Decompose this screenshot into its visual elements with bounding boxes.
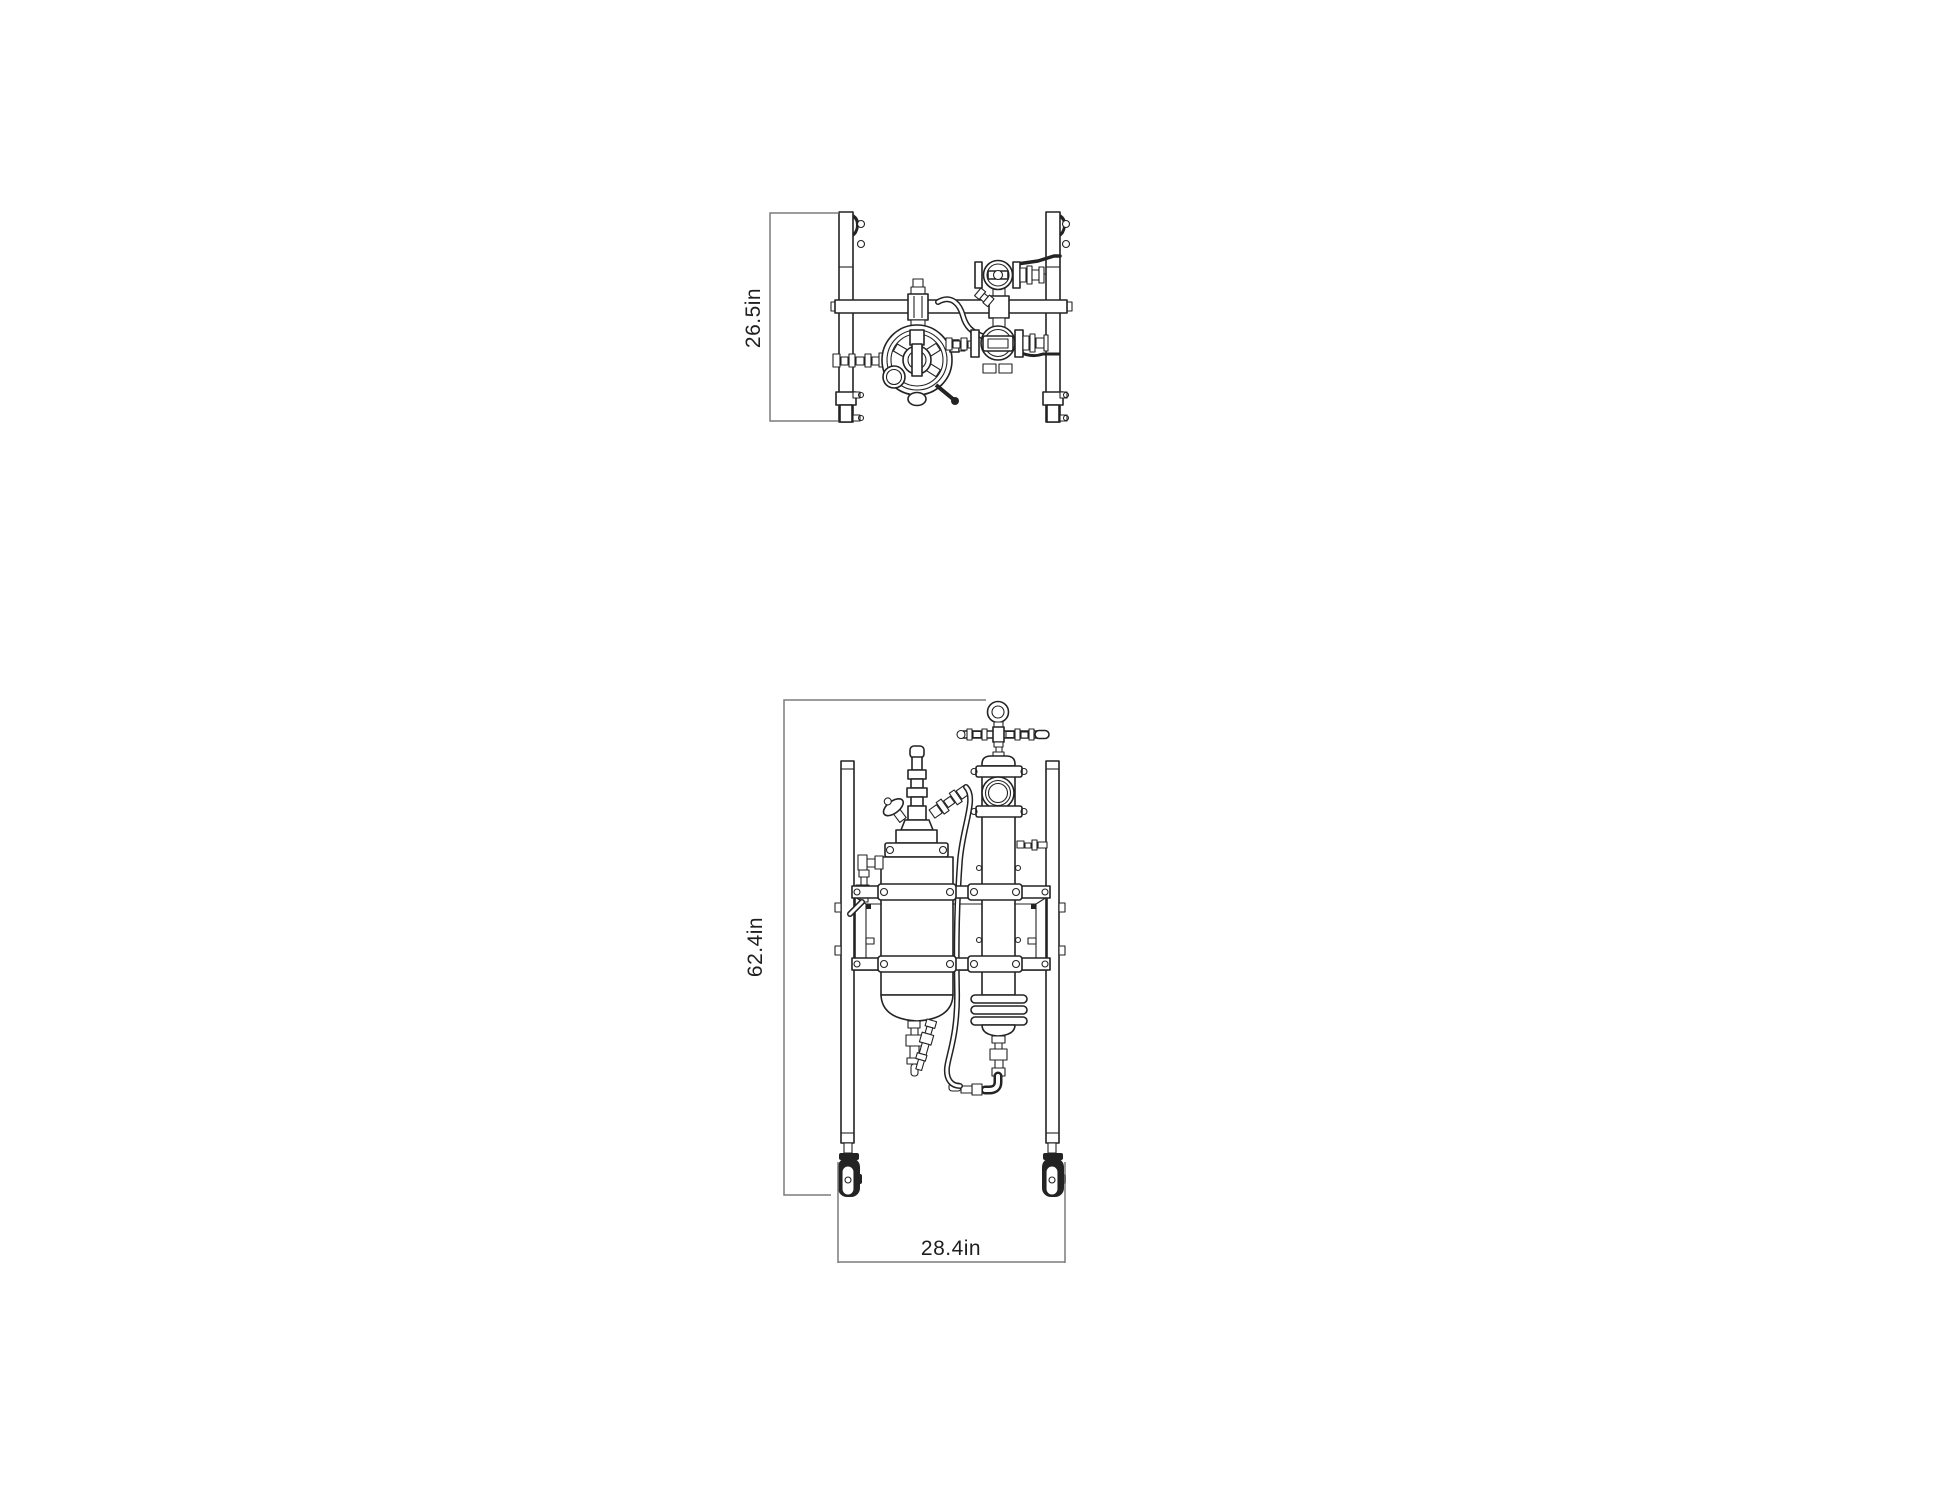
bar-clamp-left — [908, 279, 928, 328]
dimension-depth: 26.5in — [742, 213, 839, 421]
dimension-height-label: 62.4in — [744, 917, 767, 977]
dimension-depth-label: 26.5in — [742, 288, 765, 348]
caster-wheel-right — [1042, 1143, 1066, 1197]
front-view: 62.4in 28.4in — [744, 700, 1066, 1263]
dimension-width: 28.4in — [838, 1162, 1065, 1263]
caster-wheel-left — [838, 1143, 862, 1197]
technical-drawing: 26.5in — [0, 0, 1946, 1504]
dimension-width-label: 28.4in — [921, 1237, 981, 1260]
drawing-canvas: 26.5in — [0, 0, 1946, 1504]
bar-clamp-right — [989, 288, 1009, 328]
frame-posts-top-view — [836, 212, 1070, 422]
top-view: 26.5in — [742, 212, 1072, 422]
